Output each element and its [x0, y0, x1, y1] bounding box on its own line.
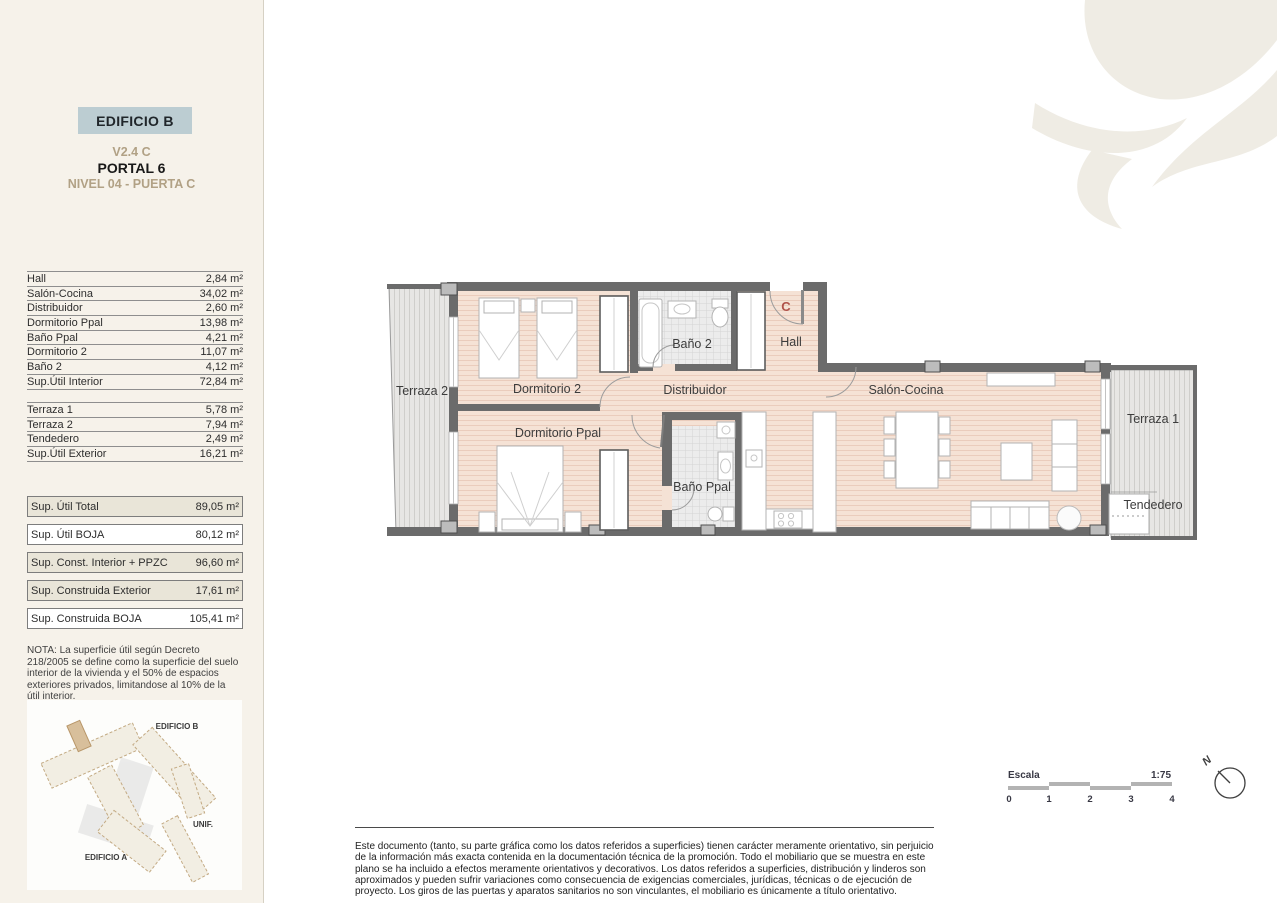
table-row: Terraza 15,78 m² [27, 403, 243, 418]
table-row: Hall2,84 m² [27, 272, 243, 287]
summary-value: 17,61 m² [196, 585, 239, 597]
scale-segments [1008, 782, 1172, 790]
entrance-letter: C [781, 299, 791, 314]
table-row: Distribuidor2,60 m² [27, 301, 243, 316]
row-label: Salón-Cocina [27, 288, 93, 300]
room-label-dormitorio-ppal: Dormitorio Ppal [515, 426, 601, 440]
floor-plan: Terraza 2 Dormitorio 2 Dormitorio Ppal B… [385, 276, 1225, 548]
note-text: NOTA: La superficie útil según Decreto 2… [27, 645, 239, 703]
room-label-terraza2: Terraza 2 [396, 384, 448, 398]
cooktop [774, 511, 802, 528]
row-label: Baño Ppal [27, 332, 78, 344]
room-label-banio2: Baño 2 [672, 337, 712, 351]
room-label-distribuidor: Distribuidor [663, 383, 726, 397]
nightstand [565, 512, 581, 532]
row-value: 4,21 m² [206, 332, 243, 344]
sofa [971, 501, 1049, 529]
wardrobe-dormitorio2 [600, 296, 628, 372]
building-name: EDIFICIO B [96, 113, 174, 129]
summary-const-interior: Sup. Const. Interior + PPZC96,60 m² [27, 552, 243, 573]
nightstand [479, 512, 495, 532]
bathtub [639, 299, 662, 367]
table-row: Salón-Cocina34,02 m² [27, 287, 243, 302]
sidebar: EDIFICIO B V2.4 C PORTAL 6 NIVEL 04 - PU… [0, 0, 264, 903]
tick-label: 4 [1169, 794, 1175, 805]
dining-table [884, 412, 950, 488]
summary-value: 96,60 m² [196, 557, 239, 569]
map-label-edificio-a: EDIFICIO A [85, 853, 128, 862]
room-label-banio-ppal: Baño Ppal [673, 480, 731, 494]
terraza2-deck [389, 287, 455, 533]
footer-divider [355, 827, 934, 828]
window [449, 317, 458, 387]
exterior-areas-table: Terraza 15,78 m² Terraza 27,94 m² Tended… [27, 402, 243, 462]
row-value: 4,12 m² [206, 361, 243, 373]
level-label: NIVEL 04 - PUERTA C [0, 177, 263, 191]
row-label: Terraza 1 [27, 404, 73, 416]
row-value: 72,84 m² [200, 376, 243, 388]
tick-label: 3 [1128, 794, 1133, 805]
summary-value: 105,41 m² [189, 613, 239, 625]
nightstand [521, 299, 535, 312]
row-label: Baño 2 [27, 361, 62, 373]
north-letter: N [1200, 753, 1215, 768]
row-label: Sup.Útil Interior [27, 376, 103, 388]
tick-label: 1 [1046, 794, 1052, 805]
entrance-opening [770, 282, 803, 291]
row-value: 2,49 m² [206, 433, 243, 445]
window [1101, 434, 1110, 484]
coffee-table [1001, 443, 1032, 480]
site-locator-map: EDIFICIO B UNIF. EDIFICIO A [27, 700, 242, 890]
scale-label: Escala [1008, 770, 1040, 781]
wardrobe-dormitorio-ppal [600, 450, 628, 530]
entrance-door-leaf [801, 290, 804, 324]
room-label-salon-cocina: Salón-Cocina [868, 383, 943, 397]
summary-label: Sup. Útil Total [31, 501, 99, 513]
row-label: Tendedero [27, 433, 79, 445]
row-label: Terraza 2 [27, 419, 73, 431]
summary-util-boja: Sup. Útil BOJA80,12 m² [27, 524, 243, 545]
disclaimer-text: Este documento (tanto, su parte gráfica … [355, 841, 941, 897]
round-rug [1057, 506, 1081, 530]
sink-banio2 [668, 301, 696, 318]
unit-code: V2.4 C [0, 145, 263, 159]
toilet-banio2 [712, 299, 728, 327]
room-label-tendedero: Tendedero [1123, 498, 1182, 512]
sideboard [987, 373, 1055, 386]
room-label-dormitorio2: Dormitorio 2 [513, 382, 581, 396]
row-value: 2,60 m² [206, 302, 243, 314]
table-row: Baño 24,12 m² [27, 360, 243, 375]
summary-value: 89,05 m² [196, 501, 239, 513]
scale-ratio: 1:75 [1151, 770, 1171, 781]
row-value: 2,84 m² [206, 273, 243, 285]
row-label: Dormitorio Ppal [27, 317, 103, 329]
row-label: Sup.Útil Exterior [27, 448, 106, 460]
shelf-unit [1052, 420, 1077, 491]
window [449, 432, 458, 504]
row-label: Hall [27, 273, 46, 285]
table-row: Terraza 27,94 m² [27, 418, 243, 433]
scale-bar: Escala 1:75 0 1 2 3 4 [1003, 765, 1183, 807]
building-badge: EDIFICIO B [78, 107, 192, 134]
window [1101, 379, 1110, 429]
table-row-total-interior: Sup.Útil Interior72,84 m² [27, 375, 243, 390]
portal-label: PORTAL 6 [0, 160, 263, 176]
bed-double [497, 446, 563, 532]
north-arrow: N [1188, 748, 1258, 808]
kitchen-island [813, 412, 836, 532]
summary-label: Sup. Construida Exterior [31, 585, 151, 597]
row-value: 5,78 m² [206, 404, 243, 416]
map-highlighted-unit [67, 720, 91, 751]
interior-areas-table: Hall2,84 m² Salón-Cocina34,02 m² Distrib… [27, 271, 243, 390]
table-row: Dormitorio 211,07 m² [27, 345, 243, 360]
bed-single-1 [479, 298, 519, 378]
banio-ppal-door-opening [662, 486, 672, 510]
summary-construida-boja: Sup. Construida BOJA105,41 m² [27, 608, 243, 629]
row-value: 7,94 m² [206, 419, 243, 431]
row-label: Dormitorio 2 [27, 346, 87, 358]
map-label-unif: UNIF. [193, 820, 213, 829]
map-label-edificio-b: EDIFICIO B [156, 722, 199, 731]
scale-ticks: 0 1 2 3 4 [1006, 794, 1175, 805]
room-label-terraza1: Terraza 1 [1127, 412, 1179, 426]
hall-closet [737, 292, 765, 370]
row-value: 13,98 m² [200, 317, 243, 329]
table-row: Dormitorio Ppal13,98 m² [27, 316, 243, 331]
tick-label: 2 [1087, 794, 1092, 805]
table-row: Baño Ppal4,21 m² [27, 331, 243, 346]
bed-single-2 [537, 298, 577, 378]
compass-needle [1218, 771, 1230, 783]
row-value: 11,07 m² [200, 346, 243, 358]
brand-swoosh-logo [1030, 0, 1277, 230]
summary-label: Sup. Construida BOJA [31, 613, 142, 625]
summary-construida-exterior: Sup. Construida Exterior17,61 m² [27, 580, 243, 601]
summary-util-total: Sup. Útil Total89,05 m² [27, 496, 243, 517]
room-label-hall: Hall [780, 335, 802, 349]
row-value: 34,02 m² [200, 288, 243, 300]
row-value: 16,21 m² [200, 448, 243, 460]
tick-label: 0 [1006, 794, 1011, 805]
table-row: Tendedero2,49 m² [27, 432, 243, 447]
summary-value: 80,12 m² [196, 529, 239, 541]
row-label: Distribuidor [27, 302, 83, 314]
summary-label: Sup. Útil BOJA [31, 529, 104, 541]
summary-label: Sup. Const. Interior + PPZC [31, 557, 168, 569]
table-row-total-exterior: Sup.Útil Exterior16,21 m² [27, 447, 243, 462]
